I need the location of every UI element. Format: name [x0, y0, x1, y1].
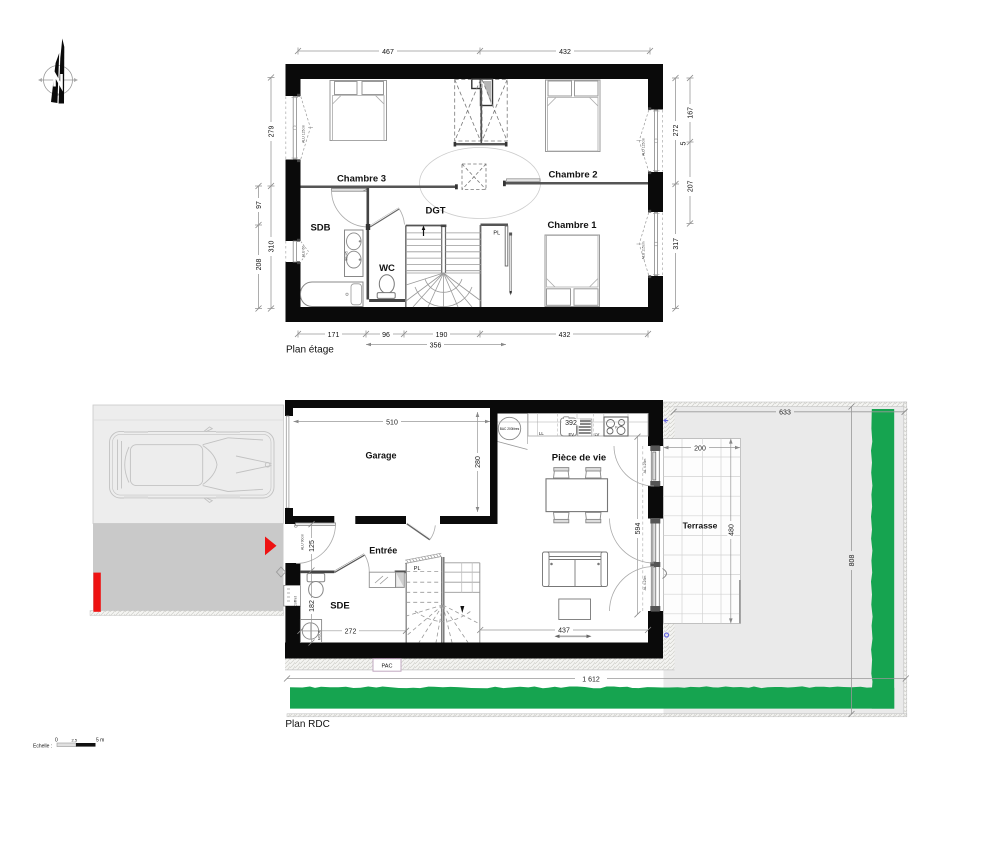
- svg-text:808: 808: [849, 555, 856, 567]
- svg-text:Terrasse: Terrasse: [683, 521, 718, 531]
- svg-text:PAC: PAC: [382, 663, 393, 669]
- svg-text:480: 480: [728, 524, 735, 536]
- svg-text:BAC 200litres: BAC 200litres: [500, 427, 520, 431]
- svg-text:356: 356: [430, 342, 442, 349]
- svg-text:2.5: 2.5: [72, 738, 78, 743]
- svg-text:ALU 60: ALU 60: [302, 246, 306, 258]
- svg-text:432: 432: [559, 332, 571, 339]
- svg-text:97: 97: [256, 201, 263, 209]
- svg-text:Coffret: Coffret: [294, 596, 298, 606]
- svg-text:ALU 115cm: ALU 115cm: [642, 241, 646, 259]
- svg-text:167: 167: [688, 107, 695, 119]
- svg-text:437: 437: [558, 628, 570, 635]
- svg-text:208: 208: [256, 259, 263, 271]
- svg-text:5: 5: [681, 141, 688, 145]
- svg-text:F: F: [615, 426, 617, 430]
- svg-text:510: 510: [386, 419, 398, 426]
- svg-text:AL 4.25m: AL 4.25m: [643, 458, 647, 473]
- svg-text:Entrée: Entrée: [369, 546, 397, 556]
- svg-text:Plan étage: Plan étage: [286, 345, 334, 356]
- svg-text:WC: WC: [379, 263, 395, 274]
- svg-text:392: 392: [565, 420, 577, 427]
- svg-text:272: 272: [345, 629, 357, 636]
- svg-text:272: 272: [673, 125, 680, 137]
- svg-text:467: 467: [382, 49, 394, 56]
- svg-text:432: 432: [559, 49, 571, 56]
- svg-text:125: 125: [309, 540, 316, 552]
- svg-text:317: 317: [673, 238, 680, 250]
- svg-text:PL: PL: [414, 566, 421, 572]
- svg-text:633: 633: [779, 410, 791, 417]
- svg-text:Plan RDC: Plan RDC: [285, 719, 329, 730]
- svg-text:90x45: 90x45: [345, 251, 349, 261]
- svg-text:LL: LL: [539, 431, 544, 436]
- svg-text:AL 4.25m: AL 4.25m: [643, 575, 647, 590]
- svg-text:DGT: DGT: [425, 205, 445, 216]
- svg-text:LV: LV: [595, 432, 600, 437]
- svg-text:Chambre 3: Chambre 3: [337, 174, 386, 185]
- svg-text:ALU 90cm: ALU 90cm: [301, 534, 305, 550]
- svg-text:ALU 115cm: ALU 115cm: [642, 138, 646, 156]
- svg-text:EV: EV: [569, 432, 575, 437]
- svg-text:Pièce de vie: Pièce de vie: [552, 452, 606, 463]
- svg-text:279: 279: [269, 126, 276, 138]
- svg-text:SDE: SDE: [330, 601, 350, 612]
- svg-text:594: 594: [635, 523, 642, 535]
- svg-text:ALU 115cm: ALU 115cm: [302, 125, 306, 143]
- svg-text:171: 171: [328, 332, 340, 339]
- svg-text:190: 190: [436, 332, 448, 339]
- svg-text:182: 182: [309, 600, 316, 612]
- svg-text:96: 96: [382, 332, 390, 339]
- svg-text:200: 200: [694, 446, 706, 453]
- svg-text:0: 0: [55, 738, 58, 744]
- svg-text:Echelle :: Echelle :: [33, 744, 52, 750]
- svg-text:1 612: 1 612: [582, 677, 600, 684]
- svg-text:207: 207: [688, 180, 695, 192]
- svg-text:280: 280: [475, 456, 482, 468]
- svg-text:5 m: 5 m: [96, 738, 104, 744]
- svg-text:Garage: Garage: [365, 451, 396, 461]
- svg-text:SDB: SDB: [310, 223, 330, 234]
- svg-text:PL: PL: [493, 231, 500, 237]
- svg-text:310: 310: [269, 241, 276, 253]
- svg-text:Chambre 1: Chambre 1: [547, 220, 597, 231]
- svg-text:Chambre 2: Chambre 2: [548, 170, 597, 181]
